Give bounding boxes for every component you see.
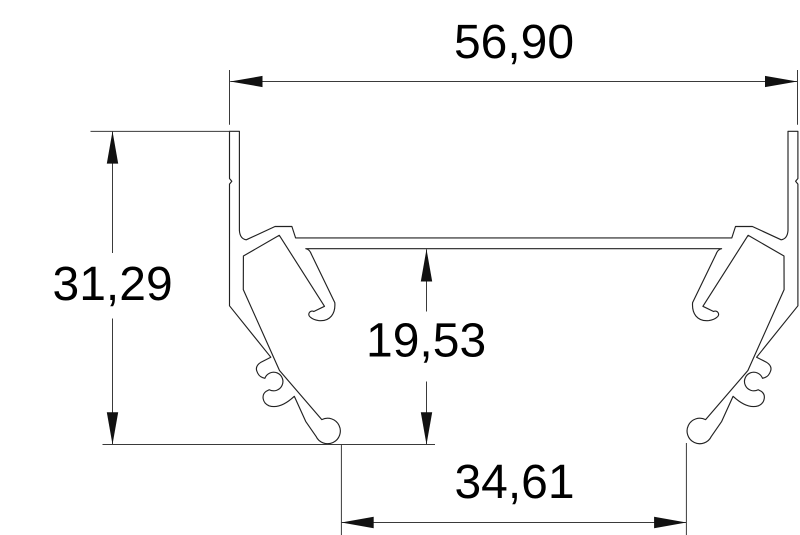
- svg-text:34,61: 34,61: [454, 456, 574, 509]
- svg-text:31,29: 31,29: [53, 258, 173, 311]
- svg-text:56,90: 56,90: [454, 16, 574, 69]
- svg-text:19,53: 19,53: [366, 314, 486, 367]
